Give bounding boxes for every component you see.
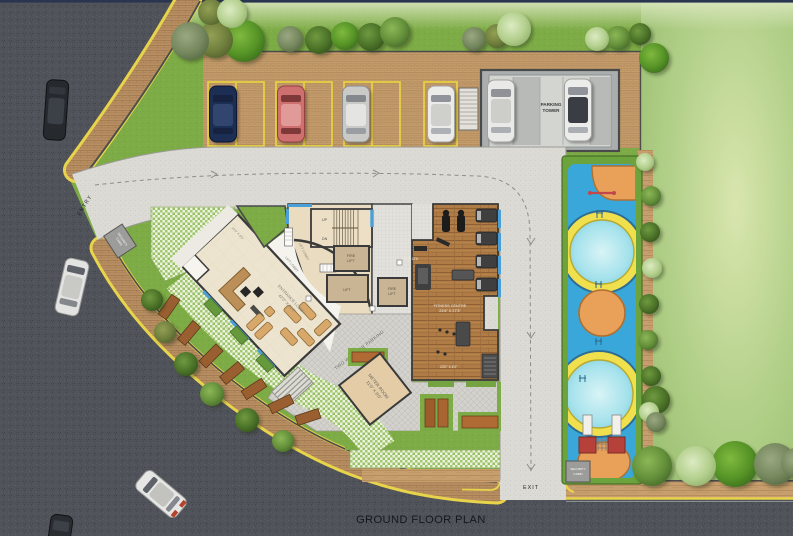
svg-text:23'0" X 4'0": 23'0" X 4'0" bbox=[440, 365, 458, 369]
svg-text:FIRE: FIRE bbox=[347, 254, 356, 258]
svg-text:FIRE: FIRE bbox=[388, 287, 397, 291]
svg-text:UP: UP bbox=[322, 218, 328, 222]
svg-text:LIFT: LIFT bbox=[388, 292, 396, 296]
svg-text:EXIT: EXIT bbox=[523, 485, 539, 491]
svg-text:TOWER: TOWER bbox=[542, 108, 560, 113]
svg-text:LIFT: LIFT bbox=[347, 259, 355, 263]
svg-text:GROUND FLOOR PLAN: GROUND FLOOR PLAN bbox=[356, 514, 486, 526]
svg-text:FITNESS CENTRE: FITNESS CENTRE bbox=[434, 304, 467, 308]
svg-text:PARKING: PARKING bbox=[541, 102, 562, 107]
svg-text:SECURITY: SECURITY bbox=[570, 467, 585, 471]
svg-text:LIFT: LIFT bbox=[343, 288, 351, 292]
svg-text:7'4 X 12'6: 7'4 X 12'6 bbox=[403, 257, 418, 261]
svg-text:21'6" X 27'3": 21'6" X 27'3" bbox=[439, 309, 461, 313]
svg-text:DN: DN bbox=[322, 237, 328, 241]
svg-text:CABIN: CABIN bbox=[573, 472, 582, 476]
